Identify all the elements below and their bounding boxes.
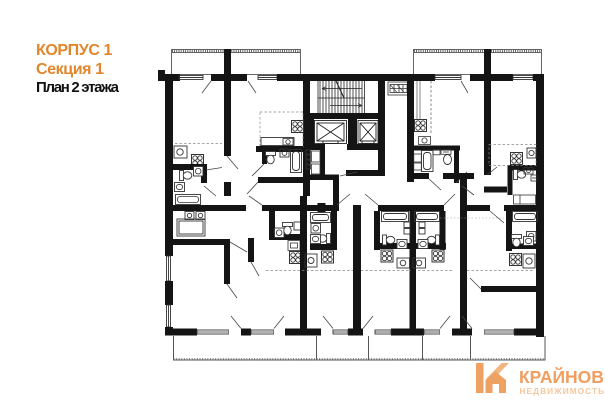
- svg-text:НЕДВИЖИМОСТЬ: НЕДВИЖИМОСТЬ: [520, 386, 605, 396]
- svg-text:КРАЙНОВ: КРАЙНОВ: [519, 366, 604, 387]
